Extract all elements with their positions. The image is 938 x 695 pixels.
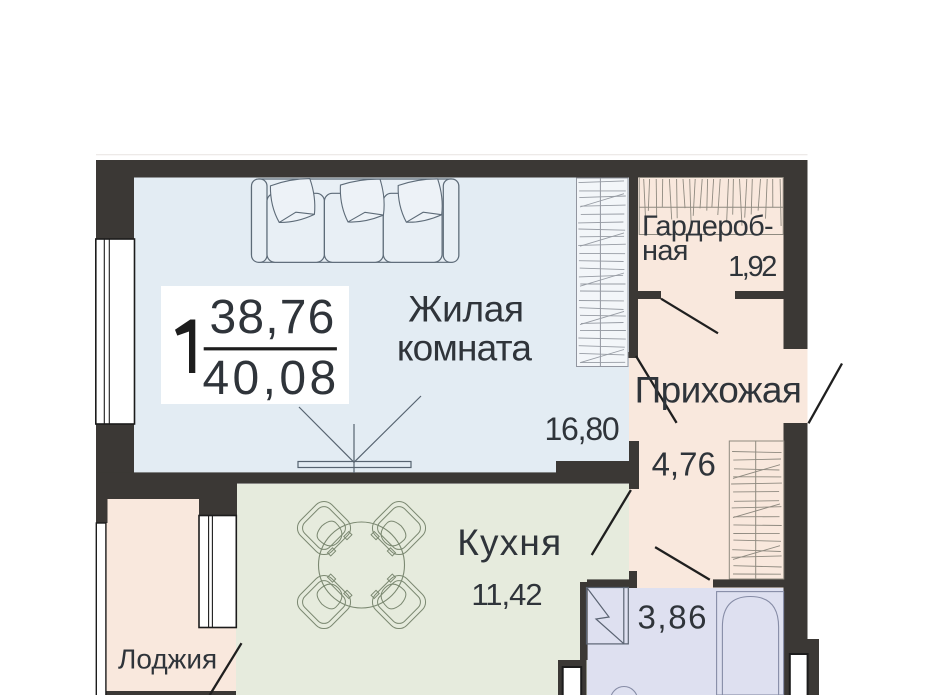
svg-text:38,76: 38,76 xyxy=(209,291,335,344)
svg-text:Лоджия: Лоджия xyxy=(118,644,217,675)
svg-text:Жилая: Жилая xyxy=(408,289,524,330)
svg-text:Кухня: Кухня xyxy=(457,522,562,563)
svg-text:Прихожая: Прихожая xyxy=(635,370,802,411)
svg-text:16,80: 16,80 xyxy=(544,411,618,447)
svg-text:ная: ная xyxy=(642,235,688,267)
svg-text:1,92: 1,92 xyxy=(728,251,776,283)
svg-text:3,86: 3,86 xyxy=(637,599,708,636)
svg-text:комната: комната xyxy=(397,328,533,369)
svg-text:4,76: 4,76 xyxy=(652,446,716,483)
svg-text:40,08: 40,08 xyxy=(202,352,339,405)
svg-text:11,42: 11,42 xyxy=(471,577,541,612)
